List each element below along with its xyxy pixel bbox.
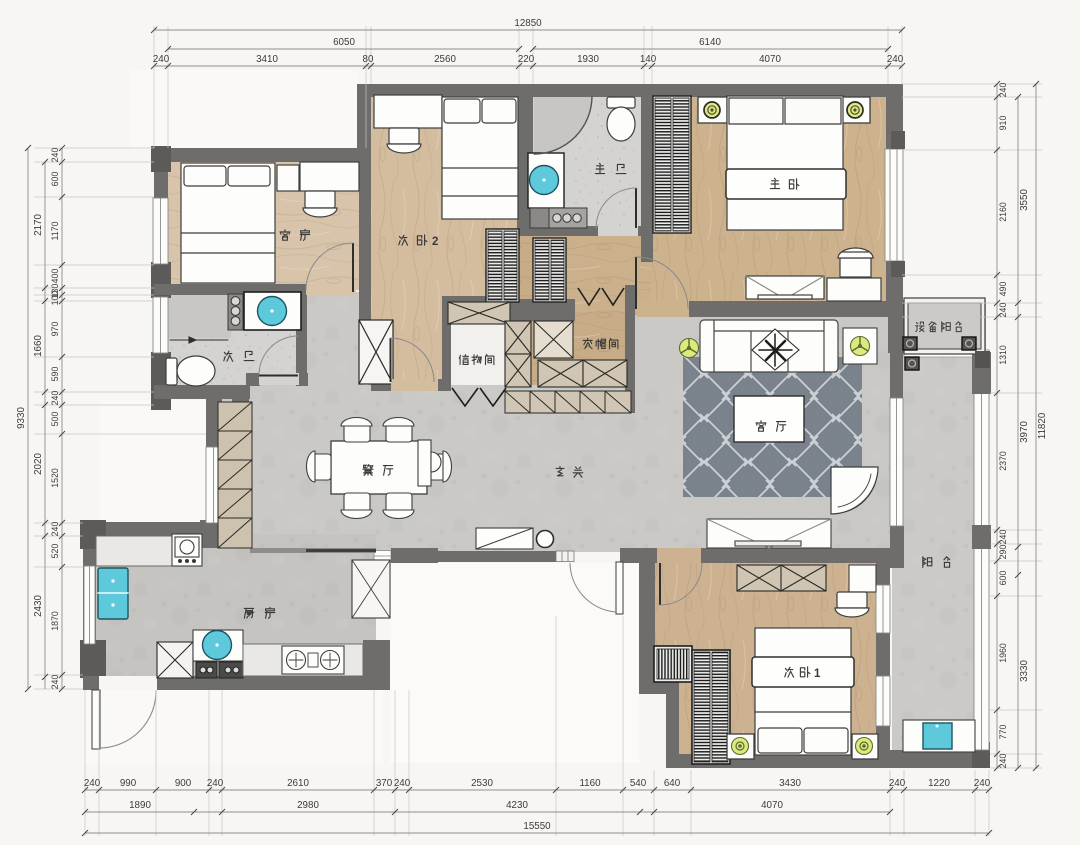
svg-text:1660: 1660 [33, 335, 44, 357]
svg-text:640: 640 [664, 778, 681, 789]
svg-text:2370: 2370 [998, 451, 1008, 471]
svg-text:520: 520 [50, 544, 60, 559]
svg-text:100: 100 [50, 291, 60, 306]
svg-text:990: 990 [120, 778, 137, 789]
svg-text:9330: 9330 [16, 407, 27, 429]
svg-text:1870: 1870 [50, 611, 60, 631]
svg-text:240: 240 [887, 54, 904, 65]
svg-text:1170: 1170 [50, 221, 60, 240]
svg-text:600: 600 [998, 571, 1008, 586]
svg-text:1220: 1220 [928, 778, 950, 789]
svg-text:2530: 2530 [471, 778, 493, 789]
svg-text:240: 240 [50, 391, 60, 406]
svg-text:2610: 2610 [287, 778, 309, 789]
svg-text:3550: 3550 [1019, 189, 1030, 211]
svg-text:900: 900 [175, 778, 192, 789]
svg-text:1310: 1310 [998, 345, 1008, 365]
svg-text:290: 290 [998, 545, 1008, 560]
svg-text:1930: 1930 [577, 54, 599, 65]
svg-text:1: 1 [814, 668, 821, 680]
svg-text:240: 240 [998, 303, 1008, 318]
svg-text:4070: 4070 [761, 800, 783, 811]
svg-text:240: 240 [974, 778, 991, 789]
svg-text:220: 220 [518, 54, 535, 65]
svg-text:500: 500 [50, 412, 60, 427]
svg-text:240: 240 [998, 83, 1008, 98]
svg-text:2560: 2560 [434, 54, 456, 65]
svg-text:1960: 1960 [998, 643, 1008, 663]
svg-text:240: 240 [50, 675, 60, 690]
svg-text:3430: 3430 [779, 778, 801, 789]
svg-text:400: 400 [50, 269, 60, 284]
svg-text:600: 600 [50, 172, 60, 187]
svg-text:2020: 2020 [33, 453, 44, 475]
svg-text:3970: 3970 [1019, 421, 1030, 443]
svg-text:240: 240 [998, 754, 1008, 769]
svg-text:3330: 3330 [1019, 660, 1030, 682]
svg-text:2980: 2980 [297, 800, 319, 811]
svg-text:590: 590 [50, 367, 60, 382]
svg-text:2430: 2430 [33, 595, 44, 617]
svg-text:6050: 6050 [333, 37, 355, 48]
svg-text:1520: 1520 [50, 468, 60, 488]
svg-text:2160: 2160 [998, 202, 1008, 222]
svg-text:1160: 1160 [579, 778, 601, 789]
svg-text:15550: 15550 [523, 821, 551, 832]
svg-text:910: 910 [998, 116, 1008, 131]
svg-text:4070: 4070 [759, 54, 781, 65]
svg-text:2170: 2170 [33, 214, 44, 236]
svg-text:240: 240 [84, 778, 101, 789]
svg-text:540: 540 [630, 778, 647, 789]
svg-text:4230: 4230 [506, 800, 528, 811]
svg-text:370: 370 [376, 778, 393, 789]
svg-text:240: 240 [153, 54, 170, 65]
svg-text:240: 240 [207, 778, 224, 789]
svg-text:80: 80 [363, 54, 374, 65]
svg-text:2: 2 [432, 236, 438, 248]
svg-text:12850: 12850 [514, 18, 542, 29]
svg-text:240: 240 [889, 778, 906, 789]
svg-text:770: 770 [998, 725, 1008, 740]
svg-text:1890: 1890 [129, 800, 151, 811]
svg-text:6140: 6140 [699, 37, 721, 48]
svg-text:240: 240 [50, 148, 60, 163]
svg-text:490: 490 [998, 282, 1008, 297]
svg-text:240: 240 [50, 522, 60, 537]
svg-text:970: 970 [50, 322, 60, 337]
svg-text:11820: 11820 [1037, 412, 1048, 439]
svg-text:140: 140 [640, 54, 657, 65]
svg-text:3410: 3410 [256, 54, 278, 65]
svg-text:240: 240 [998, 530, 1008, 545]
svg-text:240: 240 [394, 778, 411, 789]
